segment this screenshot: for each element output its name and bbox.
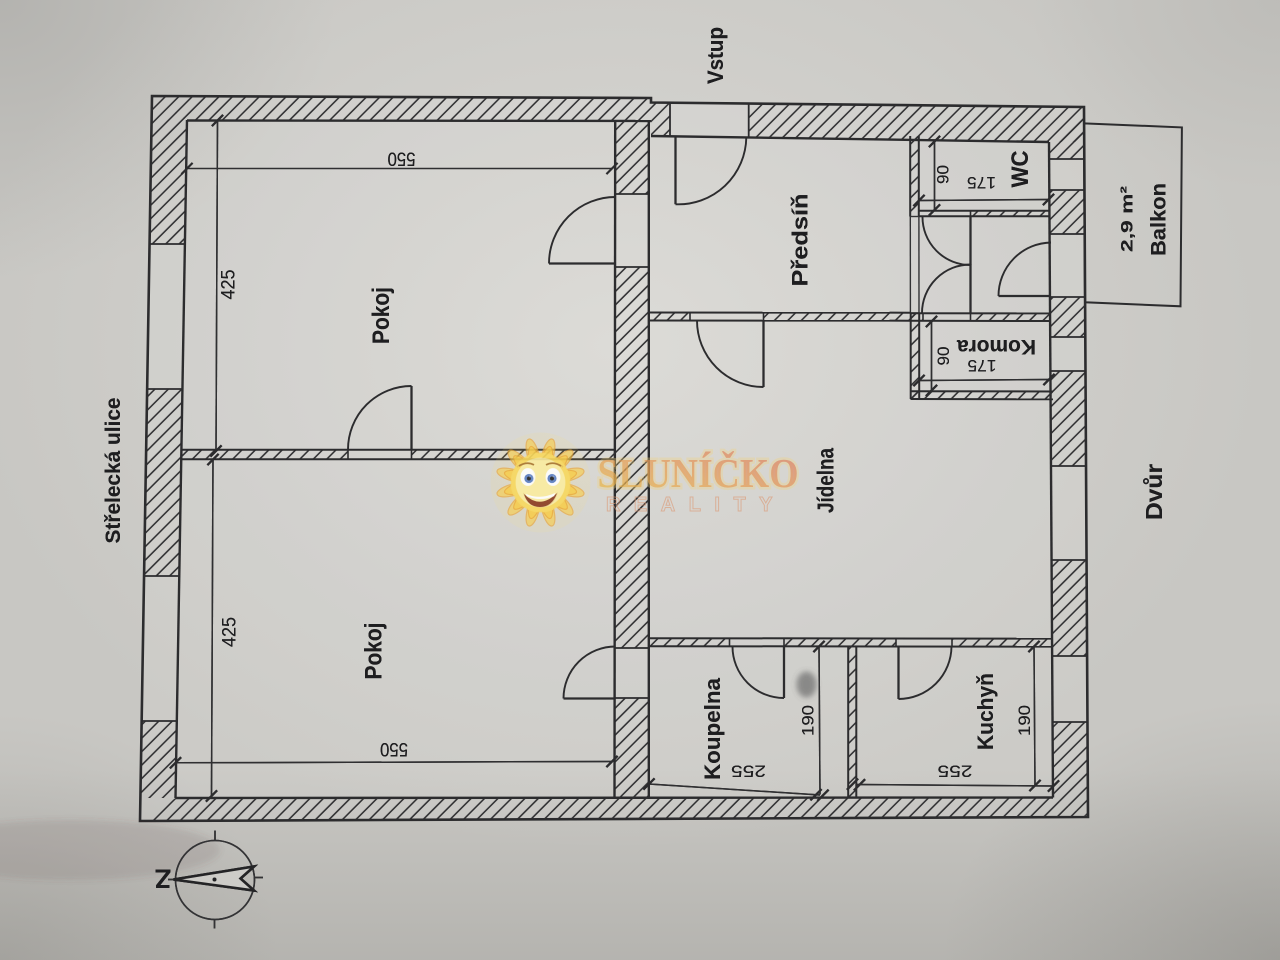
svg-text:425: 425 bbox=[219, 270, 240, 300]
svg-text:Balkon: Balkon bbox=[1148, 183, 1171, 256]
svg-text:90: 90 bbox=[934, 165, 953, 184]
svg-text:175: 175 bbox=[968, 356, 997, 375]
svg-text:Dvůr: Dvůr bbox=[1141, 464, 1167, 520]
svg-text:175: 175 bbox=[967, 173, 996, 192]
svg-text:Předsíň: Předsíň bbox=[788, 194, 813, 287]
svg-text:Pokoj: Pokoj bbox=[368, 287, 395, 344]
svg-text:Komora: Komora bbox=[957, 335, 1036, 358]
svg-text:Střelecká ulice: Střelecká ulice bbox=[102, 398, 125, 544]
svg-text:Pokoj: Pokoj bbox=[361, 623, 388, 680]
svg-text:Koupelna: Koupelna bbox=[700, 677, 725, 780]
svg-text:Jídelna: Jídelna bbox=[813, 448, 839, 513]
svg-text:190: 190 bbox=[1015, 705, 1034, 736]
svg-text:425: 425 bbox=[220, 617, 241, 647]
svg-text:2,9 m²: 2,9 m² bbox=[1118, 186, 1137, 252]
svg-text:Vstup: Vstup bbox=[703, 27, 728, 84]
svg-text:550: 550 bbox=[388, 148, 416, 169]
svg-text:190: 190 bbox=[799, 705, 818, 736]
svg-text:Kuchyň: Kuchyň bbox=[973, 673, 998, 750]
svg-text:90: 90 bbox=[934, 347, 953, 366]
svg-text:SLUNÍČKO: SLUNÍČKO bbox=[598, 450, 799, 496]
svg-text:255: 255 bbox=[731, 762, 766, 781]
svg-text:Z: Z bbox=[155, 864, 172, 894]
svg-text:550: 550 bbox=[380, 738, 408, 759]
svg-text:WC: WC bbox=[1007, 151, 1034, 188]
svg-text:REALITY: REALITY bbox=[606, 494, 786, 516]
svg-text:255: 255 bbox=[938, 762, 973, 781]
